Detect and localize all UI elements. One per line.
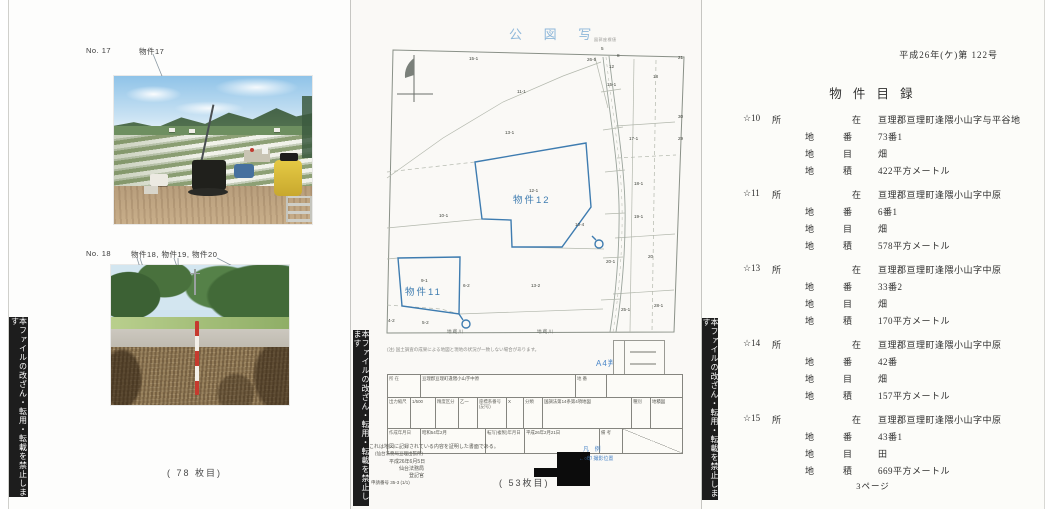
photo-page: No. 17 物件17 No. 18 物件18, 物件19, 物件20 [8,0,350,509]
property-row: 地目畑 [702,145,1044,162]
row-label: 在 [852,338,861,351]
row-value: 亘理郡亘理町逢隈小山字中原 [878,188,1002,201]
row-label: 地 [805,297,814,310]
row-label: 地 [805,164,814,177]
map-edge-tick: 29 [678,136,683,141]
photo-machine-base [188,188,228,196]
photo-red-item [250,148,254,152]
row-label: 積 [843,464,852,477]
property-row: 地目田 [702,445,1044,462]
row-value: 6番1 [878,205,898,218]
entry-number: ☆10 [743,113,760,124]
row-value: 亘理郡亘理町逢隈小山字与平谷地 [878,113,1021,126]
sheet-number-note: ( 53枚目) [499,476,550,489]
row-value: 43番1 [878,430,903,443]
row-value: 畑 [878,297,888,310]
row-label: 地 [805,464,814,477]
table-cell: 地 番 [575,375,606,397]
parcel-number: 17-1 [629,136,638,141]
parcel-number: 18-1 [634,181,643,186]
property-row: 地番42番 [702,353,1044,370]
photo-pump-machine [192,160,226,190]
table-cell: 精度区分 [435,398,458,428]
property-entry: ☆11所在亘理郡亘理町逢隈小山字中原地番6番1地目畑地積578平方メートル [702,186,1044,254]
parcel-number: 5-2 [422,320,429,325]
parcel-number: 20-1 [606,259,615,264]
property-row: ☆13所在亘理郡亘理町逢隈小山字中原 [702,261,1044,278]
row-value: 亘理郡亘理町逢隈小山字中原 [878,338,1002,351]
photo-step-ladder [286,196,312,222]
photo-yellow-tank [274,160,302,196]
parcel-number: 26-5 [587,57,596,62]
parcel-number: 15-1 [469,56,478,61]
row-value: 157平方メートル [878,389,950,402]
row-label: 地 [805,147,814,160]
table-cell: 地積図 [650,398,682,428]
parcel-number: 10-4 [575,222,584,227]
row-label: 地 [805,372,814,385]
photo-survey-pole [195,321,199,395]
certification-office-note: (仙台法務局亘理出張所) [375,451,423,457]
entry-number: ☆11 [743,188,760,199]
row-label: 目 [843,297,852,310]
row-label: 地 [805,239,814,252]
row-label: 地 [805,130,814,143]
table-cell-diagonal [622,429,682,453]
row-value: 42番 [878,355,898,368]
photo-blue-tarp [234,164,254,178]
property-row: ☆11所在亘理郡亘理町逢隈小山字中原 [702,186,1044,203]
road-label: 地蔵川 [537,329,554,335]
property-entry: ☆10所在亘理郡亘理町逢隈小山字与平谷地地番73番1地目畑地積422平方メートル [702,111,1044,179]
row-label: 積 [843,164,852,177]
row-label: 地 [805,355,814,368]
table-cell: 乙一 [458,398,477,428]
property-row: ☆10所在亘理郡亘理町逢隈小山字与平谷地 [702,111,1044,128]
table-cell: 亘理郡亘理町逢隈小山字中原 [420,375,575,397]
table-cell: 種別 [631,398,650,428]
entry-number: ☆13 [743,263,760,274]
row-label: 番 [843,130,852,143]
parcel-12-label: 物件12 [513,192,551,206]
row-label: 番 [843,205,852,218]
row-label: 地 [805,314,814,327]
entry-number: ☆14 [743,338,760,349]
parcel-number: 12 [609,64,614,69]
entry-number: ☆15 [743,413,760,424]
photo-gravel-road [111,329,289,349]
map-edge-tick: 21 [678,55,683,60]
table-cell: 1/500 [410,398,435,428]
property-entry: ☆14所在亘理郡亘理町逢隈小山字中原地番42番地目畑地積157平方メートル [702,336,1044,404]
property-row: 地積669平方メートル [702,462,1044,479]
property-row: 地番6番1 [702,203,1044,220]
parcel-number: 13-1 [505,130,514,135]
parcel-number: 25-1 [621,307,630,312]
row-label: 積 [843,389,852,402]
property-row: 地積578平方メートル [702,237,1044,254]
property-row: 地目畑 [702,220,1044,237]
property-row: 地番73番1 [702,128,1044,145]
property-entry: ☆13所在亘理郡亘理町逢隈小山字中原地番33番2地目畑地積170平方メートル [702,261,1044,329]
registrar-label: 登記官 [409,472,424,479]
row-label: 番 [843,355,852,368]
row-label: 所 [772,113,781,126]
map-footnote: (注) 国土調査の成果による地図と現地の状況が一致しない場合があります。 [387,347,539,353]
row-value: 170平方メートル [878,314,950,327]
parcel-number: 19-1 [634,214,643,219]
row-label: 在 [852,188,861,201]
stamp-line [630,363,656,365]
property-row: ☆15所在亘理郡亘理町逢隈小山字中原 [702,411,1044,428]
row-label: 所 [772,413,781,426]
parcel-number: 13-2 [531,283,540,288]
photo-trees [111,265,289,321]
tamper-warning-banner: 本ファイルの改ざん・転用・転載を禁止します [702,318,718,500]
photo-tank-lid [280,153,298,161]
table-cell: 分類 [523,398,542,428]
photo-house [274,128,280,132]
scanned-documents-canvas: No. 17 物件17 No. 18 物件18, 物件19, 物件20 [0,0,1045,509]
row-label: 所 [772,338,781,351]
row-label: 在 [852,113,861,126]
legend-entry: ←○印 撮影位置 [579,455,613,462]
page-title: 物 件 目 録 [702,83,1044,102]
property-row: 地番33番2 [702,278,1044,295]
row-value: 畑 [878,372,888,385]
row-value: 亘理郡亘理町逢隈小山字中原 [878,263,1002,276]
legend-title: 凡 例 [583,444,603,453]
row-label: 在 [852,263,861,276]
parcel-number: 20 [648,254,653,259]
parcel-number: 8 [617,53,620,58]
sheet-number-note: ( 78 枚目) [167,466,222,479]
page-number: 3ページ [702,480,1044,492]
table-row: 出力縮尺 1/500 精度区分 乙一 座標系番号(記号) X 分類 国調法第14… [388,397,682,428]
row-label: 目 [843,222,852,235]
photo-utility-crossarm [190,273,200,274]
parcel-number: 5 [601,46,604,51]
photo1-label-no: No. 17 [86,46,111,55]
row-value: 田 [878,447,888,460]
table-cell: 出力縮尺 [388,398,410,428]
map-info-table: 所 在 亘理郡亘理町逢隈小山字中原 地 番 出力縮尺 1/500 精度区分 乙一… [387,374,683,454]
photo-house [189,129,195,133]
row-value: 578平方メートル [878,239,950,252]
tamper-warning-banner: 本ファイルの改ざん・転用・転載を禁止します [353,330,369,506]
row-label: 積 [843,314,852,327]
parcel-number: 28-1 [654,303,663,308]
photo-dirt-field [111,347,289,405]
parcel-number: 18 [653,74,658,79]
row-label: 地 [805,222,814,235]
property-row: 地目畑 [702,295,1044,312]
property-list: ☆10所在亘理郡亘理町逢隈小山字与平谷地地番73番1地目畑地積422平方メートル… [702,111,1044,486]
list-page: 平成26年(ケ)第 122号 物 件 目 録 ☆10所在亘理郡亘理町逢隈小山字与… [701,0,1045,509]
row-label: 地 [805,205,814,218]
property-row: 地積170平方メートル [702,312,1044,329]
photo-white-jug [262,146,268,154]
row-value: 73番1 [878,130,903,143]
table-cell: 座標系番号(記号) [477,398,506,428]
parcel-number: 6-2 [463,283,470,288]
map-edge-tick: 30 [678,114,683,119]
row-label: 番 [843,430,852,443]
map-page: 公 図 写 図郭座標値 [350,0,701,509]
row-value: 畑 [878,147,888,160]
row-value: 畑 [878,222,888,235]
row-label: 目 [843,372,852,385]
row-label: 目 [843,147,852,160]
request-number: 申請番号 35-3 (1/1) [371,480,410,486]
row-label: 地 [805,430,814,443]
parcel-number: 9-1 [421,278,428,283]
property-row: 地積157平方メートル [702,387,1044,404]
row-label: 所 [772,263,781,276]
row-value: 422平方メートル [878,164,950,177]
row-label: 地 [805,447,814,460]
table-cell: 国調法第14条第4項地図 [542,398,631,428]
table-row: 所 在 亘理郡亘理町逢隈小山字中原 地 番 [388,375,682,397]
row-label: 積 [843,239,852,252]
parcel-number: 15-1 [607,82,616,87]
row-value: 669平方メートル [878,464,950,477]
property-photo-18-19-20 [111,265,289,405]
photo2-label-items: 物件18, 物件19, 物件20 [131,249,217,260]
photo1-label-items: 物件17 [139,46,164,57]
property-row: 地番43番1 [702,428,1044,445]
table-cell [606,375,682,397]
photo-box [144,186,158,194]
photo-house [169,128,175,132]
property-photo-17 [114,76,312,224]
row-label: 在 [852,413,861,426]
case-number: 平成26年(ケ)第 122号 [822,48,998,61]
row-label: 地 [805,389,814,402]
property-entry: ☆15所在亘理郡亘理町逢隈小山字中原地番43番1地目田地積669平方メートル [702,411,1044,479]
tamper-warning-banner: 本ファイルの改ざん・転用・転載を禁止します [9,317,28,497]
parcel-number: 10-1 [439,213,448,218]
row-label: 所 [772,188,781,201]
parcel-number: 11-1 [517,89,526,94]
photo-cooler-box [150,174,168,186]
certification-date: 平成26年6月5日 [389,458,425,465]
certification-bureau: 仙台法務局 [399,465,424,472]
row-label: 番 [843,280,852,293]
property-row: 地目畑 [702,370,1044,387]
certification-statement: これは地図に記録されている内容を証明した書面である。 [369,443,499,450]
road-label: 地蔵川 [447,329,464,335]
stamp-line [630,351,656,353]
row-label: 目 [843,447,852,460]
property-row: 地積422平方メートル [702,162,1044,179]
table-cell: 所 在 [388,375,420,397]
row-label: 地 [805,280,814,293]
property-row: ☆14所在亘理郡亘理町逢隈小山字中原 [702,336,1044,353]
table-cell: X [506,398,523,428]
photo2-label-no: No. 18 [86,249,111,258]
parcel-11-label: 物件11 [405,284,442,298]
row-value: 亘理郡亘理町逢隈小山字中原 [878,413,1002,426]
row-value: 33番2 [878,280,903,293]
parcel-number: 4-2 [388,318,395,323]
photo-right-tree [302,96,312,158]
